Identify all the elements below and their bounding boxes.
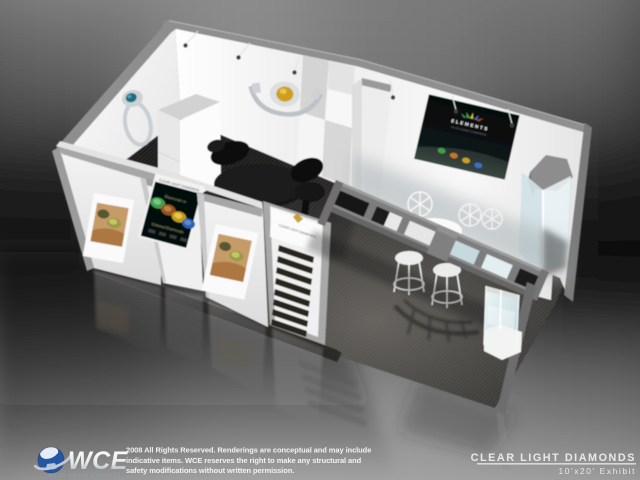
svg-text:10'x20' Exhibit: 10'x20' Exhibit <box>559 466 636 476</box>
svg-text:WEST COAST EXHIBITS: WEST COAST EXHIBITS <box>49 473 121 479</box>
svg-text:CLEAR LIGHT DIAMONDS: CLEAR LIGHT DIAMONDS <box>471 452 636 464</box>
svg-text:2008 All Rights Reserved. Rend: 2008 All Rights Reserved. Renderings are… <box>126 446 371 455</box>
svg-text:indicative items. WCE reserve: indicative items. WCE reserves the right… <box>126 456 362 465</box>
svg-text:safety modifications without w: safety modifications without written per… <box>126 466 294 475</box>
svg-text:WCE: WCE <box>68 447 129 475</box>
